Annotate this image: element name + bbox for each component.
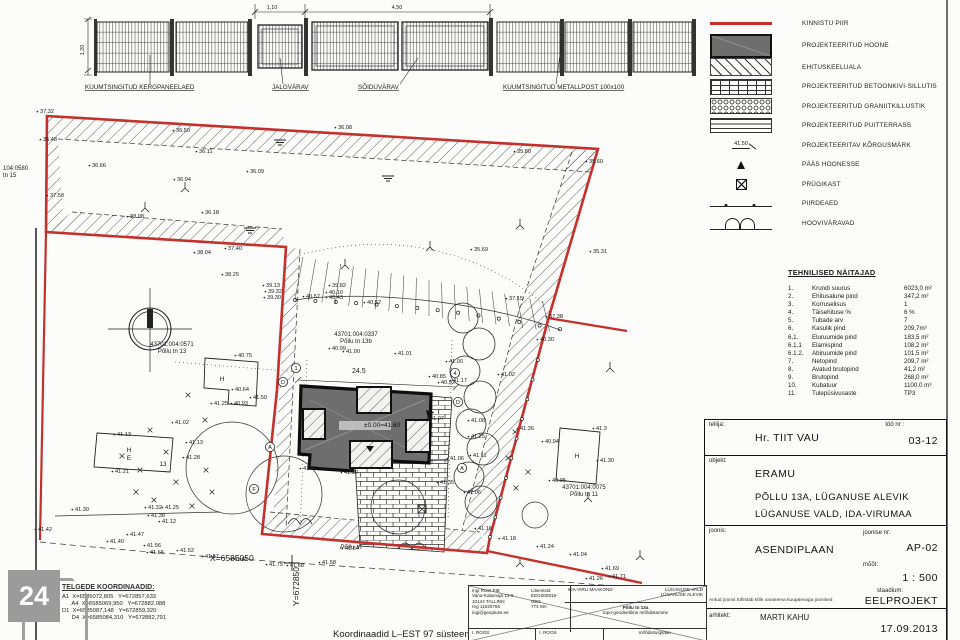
- spot-elevation: 41.42: [38, 527, 52, 533]
- spot-point: [47, 195, 49, 197]
- spot-elevation: 41.36: [520, 426, 534, 432]
- spot-elevation: 41.00: [449, 359, 463, 365]
- tech-name: Korruselisus: [812, 301, 904, 309]
- architect-name: MARTI KAHU: [760, 613, 809, 622]
- cadastral-label: 43701:004:0571: [150, 342, 194, 348]
- axis-bubble-label: A: [460, 466, 464, 472]
- spot-point: [446, 361, 448, 363]
- spot-point: [537, 339, 539, 341]
- fence-label: KUUMTSINGITUD METALLPOST 100x100: [503, 84, 625, 91]
- spot-elevation: 41.01: [398, 351, 412, 357]
- title-block-object-row: objekt: ERAMU PÕLLU 13A, LÜGANUSE ALEVIK…: [705, 456, 946, 526]
- spot-point: [89, 165, 91, 167]
- drawing-number-label: joonise nr:: [863, 530, 891, 536]
- spot-point: [183, 457, 185, 459]
- stage-label: staadium:: [877, 588, 903, 594]
- spot-point: [447, 458, 449, 460]
- stage-value: EELPROJEKT: [865, 595, 938, 607]
- spot-point: [590, 251, 592, 253]
- mark-icon: 41.50: [732, 141, 750, 149]
- spot-elevation: 35.31: [593, 249, 607, 255]
- spot-elevation: 41.56: [147, 543, 161, 549]
- house-label: 13: [159, 461, 167, 468]
- tech-val: 6023,0 m²: [904, 285, 948, 293]
- spot-point: [37, 111, 39, 113]
- spot-elevation: 41.47: [130, 532, 144, 538]
- spot-elevation: 36.08: [338, 125, 352, 131]
- tech-val: 268,0 m²: [904, 374, 948, 382]
- tech-name: Ehitusalune pind: [812, 293, 904, 301]
- tech-no: 6.1.2.: [788, 350, 812, 358]
- spot-point: [329, 285, 331, 287]
- axis-bubble-label: 1: [294, 366, 297, 372]
- spot-point: [570, 554, 572, 556]
- spot-elevation: 41.08: [471, 418, 485, 424]
- cadastral-label: Põllu tn 13b: [340, 339, 372, 345]
- legend-label: PROJEKTEERITUD HOONE: [802, 42, 889, 49]
- spot-elevation: 41.69: [605, 566, 619, 572]
- spot-point: [172, 422, 174, 424]
- object-name: ERAMU: [755, 468, 795, 480]
- spot-point: [395, 353, 397, 355]
- spot-elevation: 41.52: [180, 548, 194, 554]
- legend-item: KINNISTU PIIR: [710, 14, 948, 34]
- spot-elevation: 38.25: [225, 272, 239, 278]
- spot-point: [586, 161, 588, 163]
- spot-point: [597, 460, 599, 462]
- cadastral-label: 43701:004:0075: [562, 485, 606, 491]
- spot-point: [265, 291, 267, 293]
- fence-dim: 1,10: [267, 5, 278, 11]
- technical-row: 11.TulepüsivusasteTP3: [788, 390, 948, 398]
- spot-point: [514, 151, 516, 153]
- drawing-name: ASENDIPLAAN: [755, 544, 834, 556]
- axis-bubble-label: 4: [453, 371, 456, 377]
- spot-point: [177, 550, 179, 552]
- spot-point: [287, 565, 289, 567]
- cadastral-label: Põllu tn 11: [570, 492, 599, 498]
- tech-name: Tulepüsivusaste: [812, 390, 904, 398]
- spot-elevation: 37.58: [50, 193, 64, 199]
- stamp-site: Põllu tn 13a: [623, 605, 649, 610]
- spot-point: [173, 130, 175, 132]
- spot-elevation: 37.32: [40, 109, 54, 115]
- spot-point: [147, 552, 149, 554]
- tech-name: Brutopind: [812, 374, 904, 382]
- tech-val: 209,7 m²: [904, 358, 948, 366]
- spot-point: [127, 534, 129, 536]
- triangle-swatch: [710, 161, 772, 169]
- legend-label: PÄÄS HOONESSE: [802, 161, 860, 168]
- spot-elevation: 36.09: [250, 169, 264, 175]
- spot-point: [107, 541, 109, 543]
- spot-point: [174, 179, 176, 181]
- spot-elevation: 41.00: [346, 349, 360, 355]
- work-number-label: töö nr :: [885, 422, 904, 428]
- technical-row: 7.Netopind209,7 m²: [788, 358, 948, 366]
- spot-point: [247, 171, 249, 173]
- tech-no: 7.: [788, 358, 812, 366]
- spot-point: [498, 374, 500, 376]
- spot-point: [114, 434, 116, 436]
- spot-point: [145, 507, 147, 509]
- spot-elevation: 40.30: [540, 337, 554, 343]
- spot-point: [194, 252, 196, 254]
- spot-point: [40, 139, 42, 141]
- technical-row: 2.Ehitusalune pind347,2 m²: [788, 293, 948, 301]
- plan-text: ±0.00=41.60: [364, 422, 401, 429]
- axes-coordinate-line: A4 X=6585069,950 Y=672882,088: [62, 601, 292, 608]
- building-icon: [710, 34, 772, 58]
- tech-no: 11.: [788, 390, 812, 398]
- stamp-firm-line: ingi@geopluss.ee: [472, 610, 567, 615]
- spot-point: [235, 355, 237, 357]
- architect-label: arhitekt:: [709, 613, 730, 619]
- tech-no: 9.: [788, 374, 812, 382]
- spot-elevation: 36.48: [43, 137, 57, 143]
- tech-no: 6.1.1: [788, 342, 812, 350]
- axes-coordinate-line: D1 X=6585087,148 Y=672859,320: [62, 608, 292, 615]
- technical-row: 10.Kubatuur1100,0 m³: [788, 382, 948, 390]
- spot-elevation: 36.18: [205, 210, 219, 216]
- spot-elevation: 41.11: [473, 453, 487, 459]
- drawing-label: joonis:: [709, 528, 726, 534]
- spot-point: [231, 403, 233, 405]
- spot-elevation: 41.06: [450, 456, 464, 462]
- spot-elevation: 41.35: [440, 480, 454, 486]
- legend-item: EHITUSKEELUALA: [710, 58, 948, 78]
- spot-elevation: 41.06: [467, 490, 481, 496]
- spot-elevation: 41.24: [540, 544, 554, 550]
- spot-elevation: 37.38: [549, 314, 563, 320]
- cadastral-label: tn 15: [3, 173, 17, 179]
- tech-no: 1.: [788, 285, 812, 293]
- tech-no: 6.: [788, 325, 812, 333]
- spot-point: [335, 127, 337, 129]
- spot-point: [222, 274, 224, 276]
- deck-swatch: [710, 118, 772, 133]
- object-address1: PÕLLU 13A, LÜGANUSE ALEVIK: [755, 492, 909, 503]
- spot-elevation: 41.75: [269, 562, 283, 568]
- fence-label: KUUMTSINGITUD KERGPANEELAED: [85, 84, 195, 91]
- tech-name: Tubade arv: [812, 317, 904, 325]
- fence-icon: [710, 201, 772, 207]
- legend-label: PROJEKTEERITUD BETOONKIVI-SILLUTIS: [802, 83, 937, 90]
- hatch-icon: [710, 58, 772, 76]
- red-line-swatch: [710, 22, 772, 25]
- title-block-drawing-row: joonis: ASENDIPLAAN joonise nr: AP-02 mõ…: [705, 526, 946, 609]
- spot-point: [266, 564, 268, 566]
- spot-point: [341, 472, 343, 474]
- tech-val: 209,7m²: [904, 325, 948, 333]
- tech-name: Avatud brutopind: [812, 366, 904, 374]
- tech-val: 108,2 m²: [904, 342, 948, 350]
- stamp-license-line: 774 MA: [531, 604, 564, 609]
- spot-point: [537, 546, 539, 548]
- spot-point: [196, 151, 198, 153]
- bin-swatch: [710, 179, 772, 190]
- title-block-client-row: tellija: Hr. TIIT VAU töö nr : 03-12: [705, 420, 946, 456]
- legend-item: PIIRDEAED: [710, 194, 948, 214]
- spot-elevation: 39.82: [332, 283, 346, 289]
- tech-no: 3.: [788, 301, 812, 309]
- stamp-license-line: EEG000916-0001: [531, 593, 564, 604]
- spot-point: [602, 568, 604, 570]
- spot-point: [263, 285, 265, 287]
- house-label: E: [127, 455, 132, 462]
- spot-point: [471, 249, 473, 251]
- spot-elevation: 41.07: [430, 416, 444, 422]
- technical-indicators: TEHNILISED NÄITAJAD 1.Krundi suurus6023,…: [788, 268, 948, 398]
- spot-elevation: 41.66: [150, 550, 164, 556]
- spot-elevation: 36.11: [199, 149, 213, 155]
- tech-name: Eluruumide pind: [812, 334, 904, 342]
- spot-point: [343, 351, 345, 353]
- plan-text: Koordinaadid L–EST 97 süsteemis: [333, 629, 479, 640]
- spot-elevation: 40.92: [441, 380, 455, 386]
- spot-elevation: 41.02: [501, 372, 515, 378]
- tech-no: 6,1.: [788, 334, 812, 342]
- tech-val: 347,2 m²: [904, 293, 948, 301]
- spot-elevation: 37.40: [228, 246, 242, 252]
- spot-point: [609, 576, 611, 578]
- spot-point: [593, 428, 595, 430]
- legend-label: PROJEKTEERITUD GRANIITKILLUSTIK: [802, 103, 925, 110]
- legend-label: PROJEKTEERITUD PUITTERRASS: [802, 122, 911, 129]
- spot-elevation: 41.16: [478, 526, 492, 532]
- spot-point: [202, 556, 204, 558]
- spot-point: [329, 348, 331, 350]
- legend-label: EHITUSKEELUALA: [802, 64, 861, 71]
- spot-point: [232, 389, 234, 391]
- technical-row: 5.Tubade arv7: [788, 317, 948, 325]
- axis-bubble-label: A: [268, 445, 272, 451]
- spot-point: [464, 492, 466, 494]
- spot-elevation: 41.58: [322, 560, 336, 566]
- axis-bubble-label: D: [281, 380, 285, 386]
- spot-point: [35, 529, 37, 531]
- work-number: 03-12: [909, 435, 938, 447]
- cadastral-label: 43701:004:0337: [334, 332, 378, 338]
- spot-point: [202, 212, 204, 214]
- revocation-note: Antud joonis tühistab kõik varasema kuup…: [709, 598, 849, 603]
- bin-icon: [736, 179, 747, 190]
- tech-name: Kubatuur: [812, 382, 904, 390]
- technical-row: 6,1.Eluruumide pind183,5 m²: [788, 334, 948, 342]
- title-block-architect-row: arhitekt: MARTI KAHU 17.09.2013: [705, 609, 946, 639]
- scale-label: mõõt:: [863, 562, 878, 568]
- technical-indicators-title: TEHNILISED NÄITAJAD: [788, 268, 948, 277]
- technical-row: 9.Brutopind268,0 m²: [788, 374, 948, 382]
- spot-point: [468, 436, 470, 438]
- legend-item: PRÜGIKAST: [710, 175, 948, 195]
- technical-row: 3.Korruselisus1: [788, 301, 948, 309]
- brick-icon: [710, 79, 772, 95]
- plan-text: Y=672850: [291, 567, 301, 606]
- spot-elevation: 41.40: [110, 539, 124, 545]
- house-label: H: [575, 453, 580, 460]
- spot-point: [303, 296, 305, 298]
- spot-elevation: 41.25: [165, 505, 179, 511]
- spot-elevation: 41.30: [75, 507, 89, 513]
- tech-val: TP3: [904, 390, 948, 398]
- surveyor-stamp: Ingi Roos FIEVana-Kalamaja 13-510144 TAL…: [468, 585, 707, 640]
- spot-point: [211, 403, 213, 405]
- spot-elevation: 39.30: [267, 295, 281, 301]
- mark-swatch: 41.50: [710, 141, 772, 149]
- technical-row: 8.Avatud brutopind41,2 m²: [788, 366, 948, 374]
- stamp-work: Põllu tn 13a topo-geodeetiline mõõdistam…: [565, 601, 706, 631]
- spot-point: [438, 382, 440, 384]
- spot-elevation: 41.13: [117, 432, 131, 438]
- spot-point: [326, 292, 328, 294]
- spot-point: [542, 441, 544, 443]
- drawing-sheet: 37.3236.4837.5836.6636.5036.1136.9436.09…: [0, 0, 960, 640]
- hatch-swatch: [710, 58, 772, 76]
- stamp-municipality: LÜGANUSE VALDLÜGANUSE ALEVIK: [661, 587, 703, 601]
- spot-elevation: 41.02: [175, 420, 189, 426]
- fence-dim: 4,50: [392, 5, 403, 11]
- legend-label: HOOVIVÄRAVAD: [802, 220, 855, 227]
- spot-point: [319, 562, 321, 564]
- spot-elevation: 40.52: [367, 300, 381, 306]
- spot-elevation: 35.69: [474, 247, 488, 253]
- legend-item: PROJEKTEERITUD PUITTERRASS: [710, 116, 948, 136]
- spot-point: [127, 216, 129, 218]
- technical-row: 4.Täisehituse %6 %: [788, 309, 948, 317]
- client-name: Hr. TIIT VAU: [755, 432, 819, 444]
- scale-value: 1 : 500: [902, 572, 938, 584]
- spot-point: [364, 302, 366, 304]
- tech-name: Kasulik pind: [812, 325, 904, 333]
- fence-label: JALGVÄRAV: [272, 83, 309, 91]
- axes-coordinates-title: TELGEDE KOORDINAADID:: [62, 584, 292, 591]
- spot-point: [546, 316, 548, 318]
- spot-point: [470, 455, 472, 457]
- spot-elevation: 41.21: [115, 469, 129, 475]
- spot-point: [506, 298, 508, 300]
- spot-elevation: 41.30: [600, 458, 614, 464]
- tech-val: 183,5 m²: [904, 334, 948, 342]
- spot-elevation: 40.94: [545, 439, 559, 445]
- technical-row: 6.Kasulik pind209,7m²: [788, 325, 948, 333]
- plan-text: 24.5: [352, 368, 366, 375]
- spot-elevation: 41.25: [471, 434, 485, 440]
- axes-coordinate-line: D4 X=6585084,310 Y=672882,791: [62, 615, 292, 622]
- cadastral-label: Põllu tn 13: [158, 349, 187, 355]
- spot-point: [264, 297, 266, 299]
- stamp-bottom-row: I. ROOS I. ROOS mõõdistusplaan: [469, 628, 706, 640]
- spot-point: [225, 248, 227, 250]
- date: 17.09.2013: [880, 623, 938, 635]
- spot-elevation: 41.50: [344, 470, 358, 476]
- spot-point: [144, 545, 146, 547]
- spot-point: [475, 528, 477, 530]
- spot-point: [162, 507, 164, 509]
- legend-label: PIIRDEAED: [802, 200, 838, 207]
- tech-val: 1: [904, 301, 948, 309]
- spot-elevation: 35.60: [589, 159, 603, 165]
- object-label: objekt:: [709, 458, 727, 464]
- spot-elevation: 38.08: [130, 214, 144, 220]
- title-block: tellija: Hr. TIIT VAU töö nr : 03-12 obj…: [704, 419, 947, 640]
- tech-val: 6 %: [904, 309, 948, 317]
- fence-swatch: [710, 201, 772, 207]
- axis-bubble-label: D: [456, 400, 460, 406]
- spot-elevation: 41.50: [303, 466, 317, 472]
- spot-point: [549, 480, 551, 482]
- tech-no: 10.: [788, 382, 812, 390]
- spot-point: [72, 509, 74, 511]
- stamp-work-type: topo-geodeetiline mõõdistamine: [603, 610, 668, 615]
- tech-name: Elamispind: [812, 342, 904, 350]
- legend-item: PROJEKTEERITUD BETOONKIVI-SILLUTIS: [710, 77, 948, 97]
- spot-elevation: 41.04: [573, 552, 587, 558]
- fence-dim: 1,20: [80, 45, 86, 56]
- object-address2: LÜGANUSE VALD, IDA-VIRUMAA: [755, 509, 912, 520]
- spot-point: [586, 578, 588, 580]
- technical-row: 6.1.1Elamispind108,2 m²: [788, 342, 948, 350]
- legend-label: PROJEKTEERITAV KÕRGUSMÄRK: [802, 142, 911, 149]
- legend-item: PÄÄS HOONESSE: [710, 155, 948, 175]
- tech-name: Abiruumide pind: [812, 350, 904, 358]
- tech-val: 1100,0 m³: [904, 382, 948, 390]
- stamp-drawing-name: mõõdistusplaan: [604, 629, 706, 640]
- stamp-county: IDA-VIRU MAAKOND: [568, 587, 613, 601]
- spot-point: [437, 482, 439, 484]
- spot-point: [159, 521, 161, 523]
- axes-coordinate-line: A1 X=6585072,805 Y=672857,633: [62, 594, 292, 601]
- legend-label: PRÜGIKAST: [802, 181, 841, 188]
- spot-elevation: 40.43: [329, 295, 343, 301]
- client-label: tellija:: [709, 422, 724, 428]
- spot-point: [148, 515, 150, 517]
- logo-24: 24: [6, 568, 96, 640]
- spot-elevation: 41.13: [189, 440, 203, 446]
- fence-elevation: [84, 4, 696, 84]
- spot-point: [517, 428, 519, 430]
- legend-label: KINNISTU PIIR: [802, 20, 849, 27]
- spot-elevation: 41.28: [186, 455, 200, 461]
- spot-elevation: 41.71: [612, 574, 626, 580]
- tech-val: 7: [904, 317, 948, 325]
- spot-point: [427, 418, 429, 420]
- legend-item: 41.50PROJEKTEERITAV KÕRGUSMÄRK: [710, 136, 948, 156]
- stamp-surveyed: I. ROOS: [469, 629, 536, 640]
- tech-no: 5.: [788, 317, 812, 325]
- triangle-icon: [737, 161, 745, 169]
- spot-point: [250, 397, 252, 399]
- spot-elevation: 40.57: [306, 294, 320, 300]
- spot-elevation: 40.75: [238, 353, 252, 359]
- technical-row: 1.Krundi suurus6023,0 m²: [788, 285, 948, 293]
- tech-name: Täisehituse %: [812, 309, 904, 317]
- red-line-icon: [710, 22, 772, 25]
- spot-elevation: 36.94: [177, 177, 191, 183]
- spot-point: [499, 538, 501, 540]
- legend-item: PROJEKTEERITUD GRANIITKILLUSTIK: [710, 97, 948, 117]
- gravel-swatch: [710, 98, 772, 114]
- spot-elevation: 40.95: [552, 478, 566, 484]
- stamp-drawn: I. ROOS: [536, 629, 603, 640]
- spot-elevation: 41.18: [502, 536, 516, 542]
- spot-point: [112, 471, 114, 473]
- spot-point: [468, 420, 470, 422]
- tech-name: Netopind: [812, 358, 904, 366]
- tech-name: Krundi suurus: [812, 285, 904, 293]
- axes-coordinates: TELGEDE KOORDINAADID: A1 X=6585072,805 Y…: [62, 584, 292, 622]
- gate-icon: [710, 217, 772, 230]
